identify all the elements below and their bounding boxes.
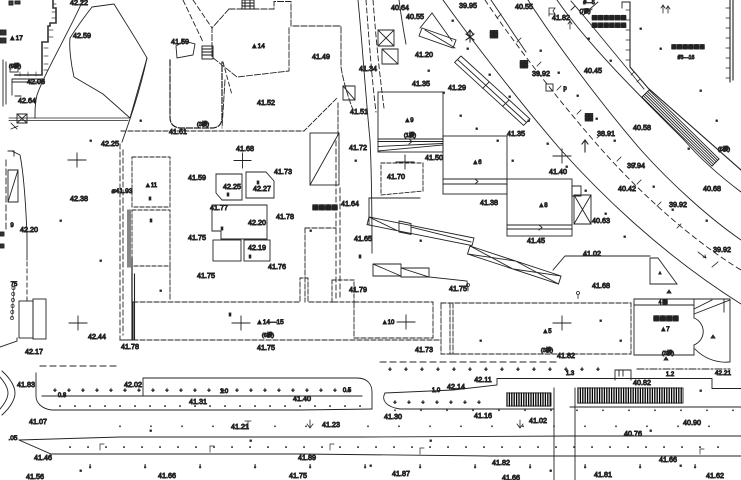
svg-text:42.06: 42.06 <box>27 77 45 86</box>
svg-text:41.75: 41.75 <box>188 233 206 242</box>
svg-text:41.07: 41.07 <box>29 417 47 426</box>
svg-text:·: · <box>164 403 166 410</box>
svg-text:41.89: 41.89 <box>298 453 316 462</box>
svg-text:+: + <box>469 367 472 373</box>
svg-text:▲7: ▲7 <box>660 327 670 333</box>
svg-text:↓: ↓ <box>254 464 257 470</box>
svg-text:40.55: 40.55 <box>515 2 533 11</box>
svg-text:·: · <box>303 444 305 451</box>
svg-text:+: + <box>478 400 481 406</box>
svg-text:·: · <box>708 424 710 430</box>
svg-text:·: · <box>305 424 307 430</box>
svg-text:·: · <box>646 424 648 430</box>
svg-text:+: + <box>334 388 337 394</box>
svg-text:▲5: ▲5 <box>542 329 552 335</box>
svg-text:·: · <box>680 408 682 414</box>
svg-text:·: · <box>472 408 474 414</box>
svg-text:II: II <box>149 196 152 201</box>
svg-text:·: · <box>717 444 719 451</box>
svg-text:·: · <box>460 424 462 430</box>
svg-text:41.21: 41.21 <box>231 422 249 431</box>
svg-text:41.68: 41.68 <box>236 144 254 153</box>
svg-text:▲9: ▲9 <box>404 118 414 124</box>
svg-text:41.31: 41.31 <box>189 397 207 406</box>
svg-text:·: · <box>573 444 575 451</box>
svg-text:+: + <box>501 367 504 373</box>
svg-text:·: · <box>177 444 179 451</box>
svg-text:42.20: 42.20 <box>248 218 266 227</box>
svg-text:+: + <box>389 367 392 373</box>
svg-text:↓: ↓ <box>89 464 92 470</box>
svg-text:·: · <box>243 424 245 430</box>
svg-text:+: + <box>152 388 155 394</box>
svg-text:·: · <box>429 444 431 451</box>
svg-text:+: + <box>236 388 239 394</box>
svg-text:+: + <box>453 367 456 373</box>
svg-text:·: · <box>87 444 89 451</box>
svg-text:↓: ↓ <box>364 464 367 470</box>
svg-text:39.95: 39.95 <box>459 1 477 10</box>
svg-text:·: · <box>299 403 301 410</box>
svg-text:↓: ↓ <box>529 464 532 470</box>
svg-text:·: · <box>654 408 656 414</box>
svg-text:(7楼): (7楼) <box>579 8 590 15</box>
svg-text:41.73: 41.73 <box>415 345 433 354</box>
svg-text:·: · <box>706 408 708 414</box>
svg-text:41.56: 41.56 <box>26 472 44 480</box>
svg-text:41.16: 41.16 <box>474 411 492 420</box>
svg-text:·: · <box>195 444 197 451</box>
svg-text:41.66: 41.66 <box>659 455 677 464</box>
svg-text:41.30: 41.30 <box>384 412 402 421</box>
svg-text:·: · <box>159 444 161 451</box>
svg-text:+: + <box>394 400 397 406</box>
svg-text:·: · <box>627 444 629 451</box>
svg-text:+: + <box>124 388 127 394</box>
svg-text:·: · <box>699 444 701 451</box>
svg-text:39.94: 39.94 <box>627 161 645 170</box>
svg-text:42.25: 42.25 <box>223 182 241 191</box>
svg-text:42.25: 42.25 <box>101 139 119 148</box>
svg-text:41.02: 41.02 <box>529 416 547 425</box>
svg-text:41.82: 41.82 <box>492 458 510 467</box>
svg-text:+: + <box>437 367 440 373</box>
svg-text:II: II <box>150 218 153 223</box>
svg-text:+: + <box>96 388 99 394</box>
svg-text:·: · <box>359 403 361 410</box>
svg-text:41.51: 41.51 <box>350 107 368 116</box>
svg-text:+: + <box>405 367 408 373</box>
svg-text:·: · <box>224 403 226 410</box>
svg-text:41.46: 41.46 <box>34 453 52 462</box>
svg-text:II: II <box>249 254 252 259</box>
svg-text:41.62: 41.62 <box>706 471 724 480</box>
svg-text:+: + <box>166 388 169 394</box>
svg-text:+: + <box>597 367 600 373</box>
svg-text:+: + <box>68 388 71 394</box>
svg-text:40.45: 40.45 <box>584 66 602 75</box>
svg-text:·: · <box>393 444 395 451</box>
svg-text:41.73: 41.73 <box>274 167 292 176</box>
svg-text:II: II <box>221 226 224 231</box>
svg-text:·: · <box>732 408 734 414</box>
svg-text:II: II <box>227 192 230 197</box>
svg-text:(3楼): (3楼) <box>662 349 674 357</box>
svg-text:42.20: 42.20 <box>20 225 38 234</box>
svg-text:▲8: ▲8 <box>538 203 548 209</box>
svg-text:41.75: 41.75 <box>197 271 215 280</box>
svg-text:39.92: 39.92 <box>532 69 550 78</box>
svg-text:38.91: 38.91 <box>597 129 615 138</box>
svg-text:1.2: 1.2 <box>666 372 675 378</box>
svg-text:▲11: ▲11 <box>145 183 158 189</box>
svg-text:·: · <box>329 403 331 410</box>
svg-text:·: · <box>119 424 121 430</box>
svg-text:·: · <box>367 424 369 430</box>
svg-text:·: · <box>677 424 679 430</box>
svg-text:42.27: 42.27 <box>253 184 271 193</box>
svg-text:↓: ↓ <box>694 464 697 470</box>
svg-text:+: + <box>222 388 225 394</box>
svg-text:·: · <box>267 444 269 451</box>
svg-text:41.68: 41.68 <box>592 281 610 290</box>
svg-text:II: II <box>257 180 260 185</box>
svg-text:▲14: ▲14 <box>251 43 265 50</box>
svg-text:↓: ↓ <box>199 464 202 470</box>
svg-text:·: · <box>537 444 539 451</box>
svg-text:·: · <box>69 444 71 451</box>
svg-text:+: + <box>464 400 467 406</box>
svg-text:·: · <box>398 424 400 430</box>
svg-text:+: + <box>194 388 197 394</box>
svg-text:75: 75 <box>11 282 18 288</box>
svg-text:4: 4 <box>659 300 662 306</box>
svg-text:1.0: 1.0 <box>432 388 441 394</box>
svg-text:·: · <box>59 403 61 410</box>
svg-text:+: + <box>408 400 411 406</box>
svg-text:·: · <box>411 444 413 451</box>
svg-text:41.02: 41.02 <box>583 249 601 258</box>
svg-text:42.44: 42.44 <box>88 332 106 341</box>
svg-text:II: II <box>229 312 232 317</box>
svg-text:·: · <box>615 424 617 430</box>
svg-text:·: · <box>231 444 233 451</box>
svg-text:41.61: 41.61 <box>169 127 187 136</box>
svg-text:+: + <box>138 388 141 394</box>
svg-text:·: · <box>491 424 493 430</box>
svg-text:·: · <box>254 403 256 410</box>
svg-text:40.55: 40.55 <box>406 12 424 21</box>
svg-text:·: · <box>602 408 604 414</box>
svg-text:·: · <box>269 403 271 410</box>
svg-text:·: · <box>119 403 121 410</box>
svg-text:·: · <box>357 444 359 451</box>
svg-text:+: + <box>180 388 183 394</box>
svg-text:41.78: 41.78 <box>276 212 294 221</box>
svg-text:.05: .05 <box>8 435 17 442</box>
svg-text:+: + <box>292 388 295 394</box>
svg-text:+: + <box>533 367 536 373</box>
svg-text:+: + <box>581 367 584 373</box>
svg-text:41.77: 41.77 <box>210 203 228 212</box>
svg-text:▲17: ▲17 <box>9 35 23 42</box>
svg-text:41.66: 41.66 <box>158 471 176 480</box>
svg-text:·: · <box>321 444 323 451</box>
svg-text:42.38: 42.38 <box>70 194 88 203</box>
svg-text:·: · <box>555 444 557 451</box>
svg-text:+: + <box>250 388 253 394</box>
svg-text:41.76: 41.76 <box>268 262 286 271</box>
svg-text:40.68: 40.68 <box>703 184 721 193</box>
svg-text:+: + <box>264 388 267 394</box>
svg-text:▲14—15: ▲14—15 <box>256 319 284 326</box>
svg-text:41.20: 41.20 <box>415 50 433 59</box>
svg-text:(6楼): (6楼) <box>262 331 274 339</box>
svg-text:·: · <box>212 424 214 430</box>
svg-text:41.81: 41.81 <box>594 470 612 479</box>
svg-text:·: · <box>149 403 151 410</box>
svg-text:41.38: 41.38 <box>480 198 498 207</box>
svg-text:40.90: 40.90 <box>683 418 701 427</box>
svg-text:II: II <box>359 254 362 259</box>
svg-text:41.75: 41.75 <box>289 471 307 480</box>
svg-text:·: · <box>123 444 125 451</box>
svg-text:+: + <box>436 400 439 406</box>
svg-text:42.14: 42.14 <box>447 382 465 391</box>
svg-text:41.64: 41.64 <box>341 199 359 208</box>
svg-text:·: · <box>609 444 611 451</box>
svg-text:41.35: 41.35 <box>507 129 525 138</box>
svg-text:+: + <box>82 388 85 394</box>
svg-text:↓: ↓ <box>309 464 312 470</box>
svg-text:·: · <box>104 403 106 410</box>
svg-text:41.83: 41.83 <box>17 380 35 389</box>
svg-text:42.64: 42.64 <box>18 96 36 105</box>
svg-text:41.45: 41.45 <box>527 236 545 245</box>
svg-text:41.65: 41.65 <box>354 234 372 243</box>
svg-text:+: + <box>485 367 488 373</box>
svg-text:42.19: 42.19 <box>248 243 266 252</box>
svg-text:41.34: 41.34 <box>359 64 377 73</box>
svg-text:·: · <box>141 444 143 451</box>
svg-text:·: · <box>179 403 181 410</box>
svg-text:41.87: 41.87 <box>392 469 410 478</box>
svg-text:·: · <box>249 444 251 451</box>
svg-text:↓: ↓ <box>474 464 477 470</box>
svg-text:·: · <box>429 424 431 430</box>
svg-text:+: + <box>565 367 568 373</box>
svg-text:(9楼): (9楼) <box>9 62 21 70</box>
svg-text:·: · <box>447 444 449 451</box>
svg-text:·: · <box>446 408 448 414</box>
svg-text:·: · <box>663 444 665 451</box>
svg-text:·: · <box>209 403 211 410</box>
svg-text:40.63: 40.63 <box>592 216 610 225</box>
svg-text:·: · <box>501 444 503 451</box>
svg-text:·: · <box>339 444 341 451</box>
svg-text:(1楼): (1楼) <box>404 131 416 139</box>
svg-text:·: · <box>553 424 555 430</box>
svg-text:+: + <box>422 400 425 406</box>
svg-text:·: · <box>314 403 316 410</box>
svg-text:·: · <box>394 408 396 414</box>
svg-text:·: · <box>628 408 630 414</box>
svg-text:41.70: 41.70 <box>387 172 405 181</box>
svg-text:42.17: 42.17 <box>25 347 43 356</box>
svg-text:40.82: 40.82 <box>633 378 651 387</box>
svg-text:39.92: 39.92 <box>669 200 687 209</box>
svg-text:↓: ↓ <box>584 464 587 470</box>
svg-text:·: · <box>284 403 286 410</box>
svg-text:41.35: 41.35 <box>412 79 430 88</box>
svg-text:41.75: 41.75 <box>449 284 467 293</box>
svg-text:↓: ↓ <box>144 464 147 470</box>
svg-text:41.82: 41.82 <box>557 351 575 360</box>
svg-text:·: · <box>239 403 241 410</box>
svg-text:·: · <box>584 424 586 430</box>
svg-text:41.78: 41.78 <box>121 342 139 351</box>
svg-text:·: · <box>89 403 91 410</box>
svg-text:41.59: 41.59 <box>188 173 206 182</box>
svg-text:·: · <box>550 408 552 414</box>
svg-text:+: + <box>110 388 113 394</box>
svg-text:+: + <box>208 388 211 394</box>
svg-text:42.11: 42.11 <box>474 375 491 384</box>
svg-text:·: · <box>483 444 485 451</box>
svg-text:·: · <box>181 424 183 430</box>
svg-text:40.64: 40.64 <box>391 3 409 12</box>
svg-text:·: · <box>194 403 196 410</box>
svg-text:(3楼): (3楼) <box>541 346 553 354</box>
svg-text:40.76: 40.76 <box>624 429 642 438</box>
svg-text:41.40: 41.40 <box>293 394 311 403</box>
svg-text:#3—16: #3—16 <box>678 55 695 61</box>
svg-text:·: · <box>105 444 107 451</box>
svg-text:+: + <box>278 388 281 394</box>
svg-text:↓: ↓ <box>639 464 642 470</box>
svg-text:·: · <box>134 403 136 410</box>
svg-text:+: + <box>54 388 57 394</box>
svg-text:+: + <box>306 388 309 394</box>
svg-text:·: · <box>522 424 524 430</box>
svg-text:+: + <box>517 367 520 373</box>
svg-text:42.59: 42.59 <box>73 31 91 40</box>
svg-text:+: + <box>421 367 424 373</box>
svg-text:·: · <box>74 403 76 410</box>
svg-text:42.21: 42.21 <box>715 370 732 377</box>
svg-text:·: · <box>591 444 593 451</box>
svg-text:+: + <box>348 388 351 394</box>
svg-text:·: · <box>465 444 467 451</box>
svg-text:41.72: 41.72 <box>349 143 367 152</box>
svg-text:·: · <box>524 408 526 414</box>
svg-text:0.8: 0.8 <box>58 393 67 399</box>
svg-text:▲10: ▲10 <box>382 320 395 326</box>
svg-text:+: + <box>549 367 552 373</box>
svg-text:41.50: 41.50 <box>425 153 443 162</box>
svg-text:39.92: 39.92 <box>713 245 731 254</box>
svg-text:41.75: 41.75 <box>257 343 275 352</box>
svg-text:41.49: 41.49 <box>312 52 330 61</box>
svg-text:·: · <box>150 424 152 430</box>
svg-text:·: · <box>336 424 338 430</box>
svg-text:·: · <box>681 444 683 451</box>
svg-text:·: · <box>274 424 276 430</box>
svg-text:(3楼): (3楼) <box>197 120 209 128</box>
svg-text:↓: ↓ <box>419 464 422 470</box>
svg-text:42.22: 42.22 <box>70 0 88 7</box>
svg-text:·: · <box>375 444 377 451</box>
svg-text:40.42: 40.42 <box>618 184 636 193</box>
svg-text:+: + <box>450 400 453 406</box>
svg-text:41.79: 41.79 <box>349 285 367 294</box>
svg-text:▲: ▲ <box>658 270 662 275</box>
svg-text:·: · <box>498 408 500 414</box>
svg-text:·: · <box>285 444 287 451</box>
svg-text:41.66: 41.66 <box>502 473 520 480</box>
svg-text:·: · <box>344 403 346 410</box>
svg-text:41.52: 41.52 <box>257 98 275 107</box>
svg-text:+: + <box>320 388 323 394</box>
svg-text:#—5: #—5 <box>583 0 595 6</box>
svg-text:·: · <box>645 444 647 451</box>
svg-text:·: · <box>576 408 578 414</box>
svg-text:·: · <box>519 444 521 451</box>
svg-text:·: · <box>213 444 215 451</box>
svg-text:⌀41.93: ⌀41.93 <box>111 188 132 195</box>
svg-text:40.58: 40.58 <box>633 123 651 132</box>
svg-text:41.40: 41.40 <box>549 167 567 176</box>
svg-text:41.29: 41.29 <box>448 83 466 92</box>
svg-text:▲6: ▲6 <box>472 160 482 166</box>
svg-text:·: · <box>420 408 422 414</box>
